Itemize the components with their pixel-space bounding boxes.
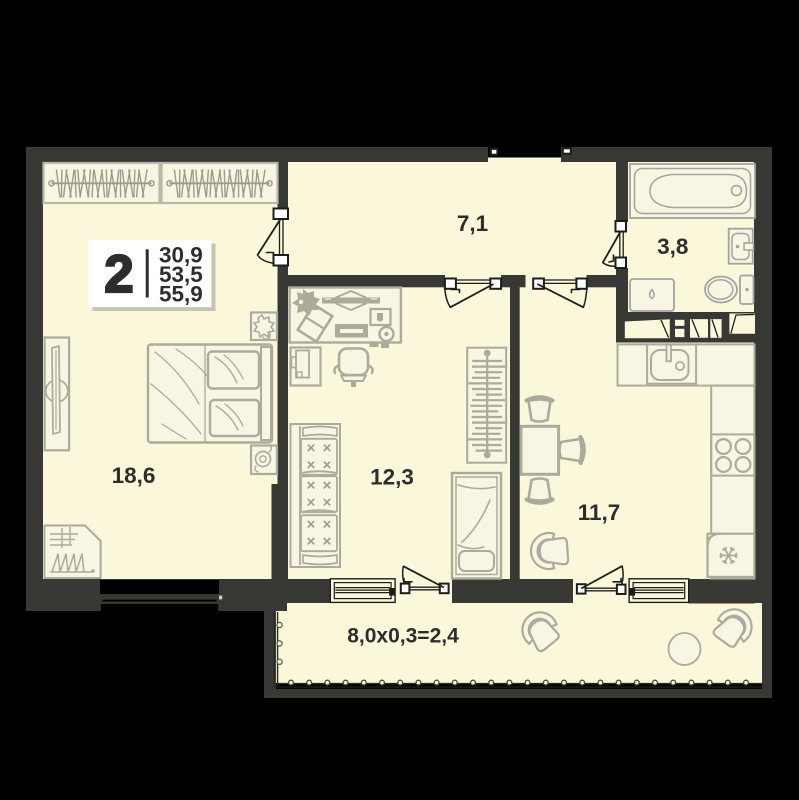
svg-text:2: 2 (104, 245, 133, 304)
svg-text:11,7: 11,7 (578, 500, 621, 525)
svg-text:8,0x0,3=2,4: 8,0x0,3=2,4 (347, 625, 459, 648)
svg-text:12,3: 12,3 (370, 465, 414, 490)
svg-text:3,8: 3,8 (657, 234, 688, 259)
svg-text:7,1: 7,1 (457, 211, 488, 236)
svg-text:18,6: 18,6 (112, 463, 156, 488)
svg-text:55,9: 55,9 (159, 282, 203, 307)
